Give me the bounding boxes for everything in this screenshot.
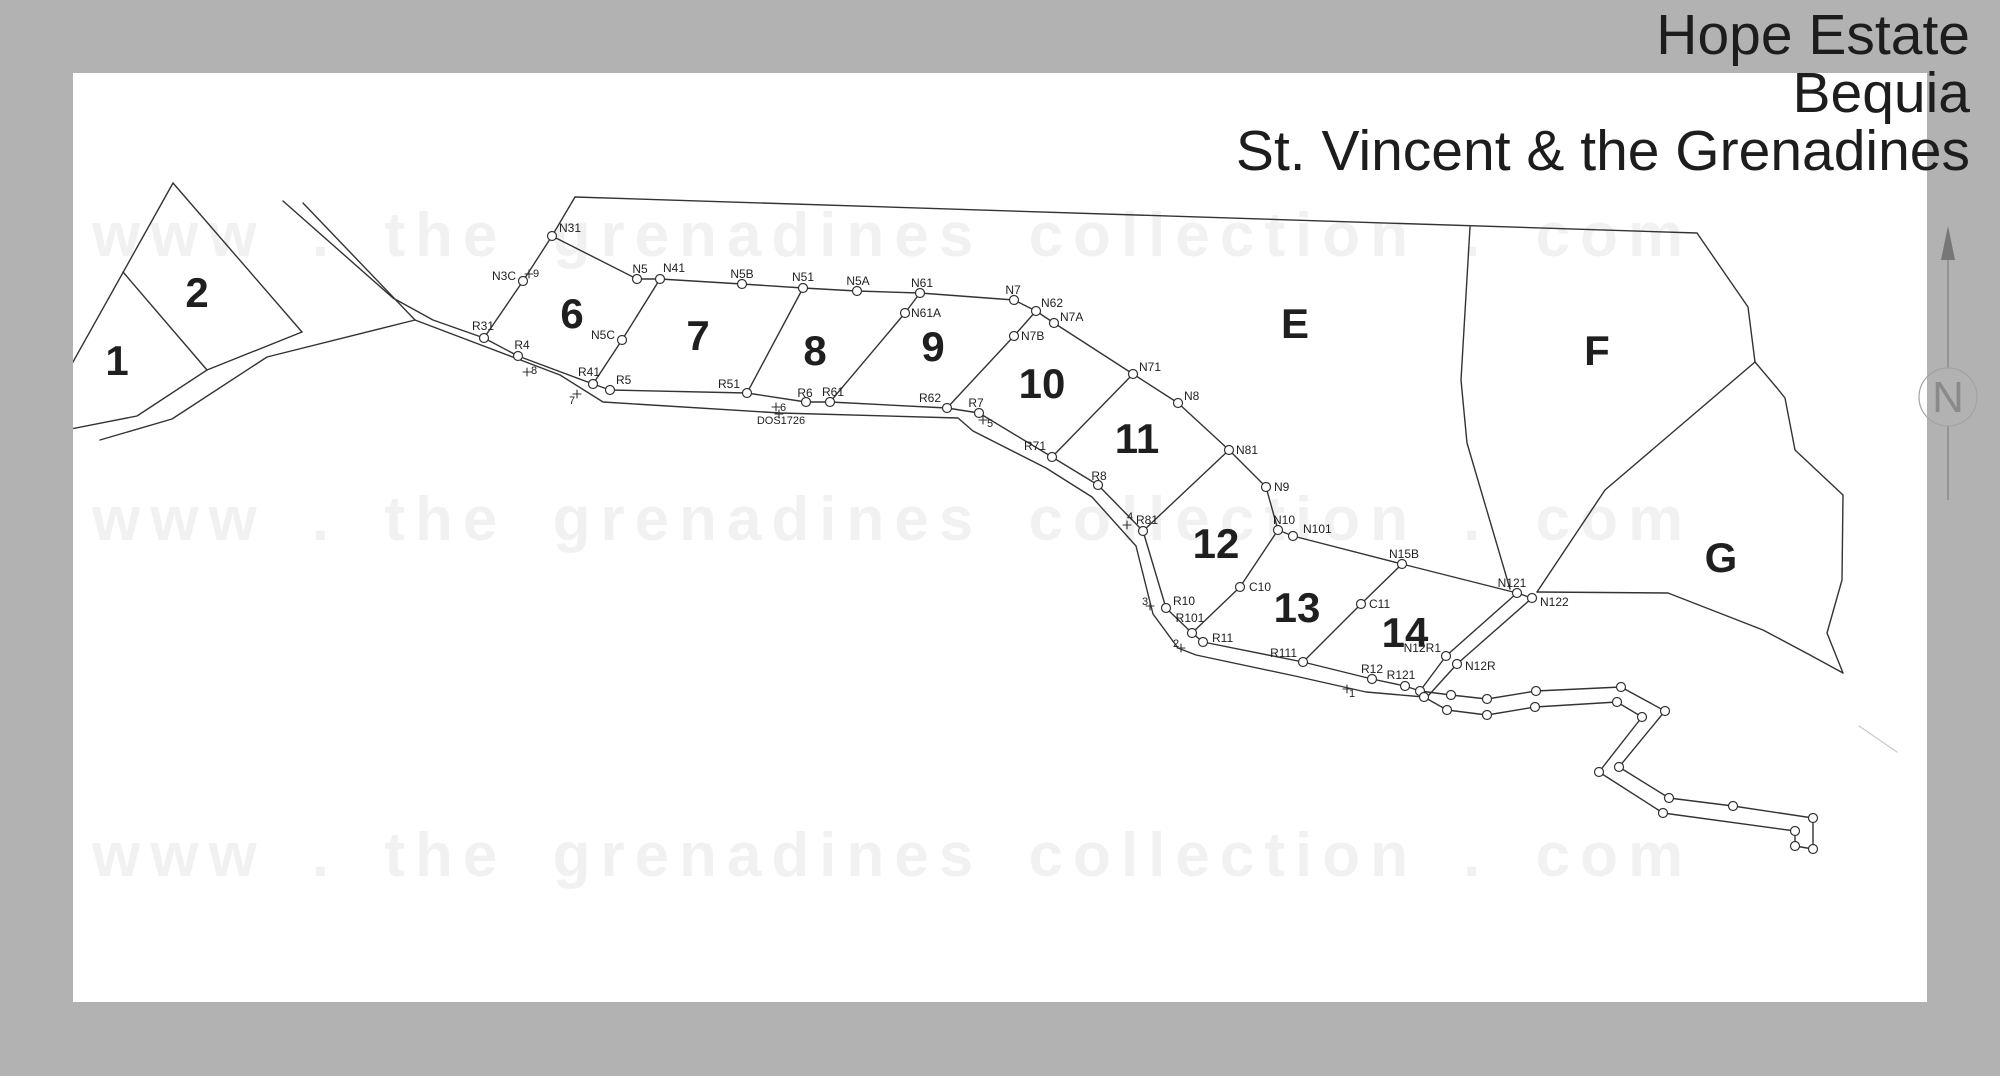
survey-marker	[1615, 763, 1624, 772]
survey-marker-N101	[1289, 532, 1298, 541]
survey-label-R51: R51	[718, 377, 740, 391]
chainage-label: 3	[1142, 596, 1148, 608]
survey-label-N5: N5	[632, 262, 648, 276]
survey-marker-R121	[1401, 682, 1410, 691]
survey-label-R6: R6	[797, 386, 813, 400]
survey-marker-R71	[1048, 453, 1057, 462]
watermark-row: www . the grenadines collection . com	[91, 201, 1693, 270]
watermark-row: www . the grenadines collection . com	[91, 485, 1693, 554]
survey-marker	[1447, 691, 1456, 700]
survey-label-N122: N122	[1540, 595, 1569, 609]
survey-marker	[1595, 768, 1604, 777]
survey-label-R7: R7	[968, 396, 984, 410]
survey-marker-R10	[1162, 604, 1171, 613]
survey-label-R10: R10	[1173, 594, 1195, 608]
survey-marker	[1729, 802, 1738, 811]
watermark-row: www . the grenadines collection . com	[91, 821, 1693, 890]
lot-label-2: 2	[185, 269, 208, 316]
survey-label-N15B: N15B	[1389, 547, 1419, 561]
title-island: Bequia	[1236, 64, 1970, 122]
survey-marker	[1532, 687, 1541, 696]
chainage-label: 4	[1127, 511, 1133, 523]
survey-label-N62: N62	[1041, 296, 1063, 310]
chainage-label: 9	[533, 268, 539, 280]
lot-label-F: F	[1584, 327, 1610, 374]
lot-label-7: 7	[686, 312, 709, 359]
survey-marker-R62	[943, 404, 952, 413]
survey-label-N7B: N7B	[1021, 329, 1044, 343]
survey-marker	[1483, 695, 1492, 704]
survey-label-N51: N51	[792, 270, 814, 284]
survey-label-N9: N9	[1274, 480, 1290, 494]
survey-marker	[1531, 703, 1540, 712]
north-arrow-letter: N	[1932, 373, 1964, 422]
survey-marker-N81	[1225, 446, 1234, 455]
survey-label-C10: C10	[1249, 580, 1271, 594]
survey-marker	[1665, 794, 1674, 803]
survey-marker-R81	[1139, 527, 1148, 536]
survey-marker-N62	[1032, 307, 1041, 316]
survey-label-N8: N8	[1184, 389, 1200, 403]
survey-label-R121: R121	[1387, 668, 1416, 682]
survey-marker-N7A	[1050, 319, 1059, 328]
survey-label-R41: R41	[578, 365, 600, 379]
survey-ref-label: DOS1726	[757, 415, 805, 427]
lot-label-E: E	[1281, 300, 1309, 347]
lot-label-10: 10	[1019, 360, 1066, 407]
survey-marker-R11	[1199, 638, 1208, 647]
survey-label-R4: R4	[514, 338, 530, 352]
survey-marker	[1617, 683, 1626, 692]
survey-label-N81: N81	[1236, 443, 1258, 457]
title-country: St. Vincent & the Grenadines	[1236, 122, 1970, 180]
survey-marker-R101	[1188, 629, 1197, 638]
survey-marker-N9	[1262, 483, 1271, 492]
survey-label-R61: R61	[822, 385, 844, 399]
lot-label-6: 6	[560, 290, 583, 337]
lot-label-14: 14	[1382, 609, 1429, 656]
survey-label-R81: R81	[1136, 513, 1158, 527]
survey-marker-N12R1	[1442, 652, 1451, 661]
lot-label-8: 8	[803, 327, 826, 374]
survey-marker-N61A	[901, 309, 910, 318]
survey-marker	[1638, 713, 1647, 722]
survey-label-R101: R101	[1176, 611, 1205, 625]
chainage-label: 1	[1349, 688, 1355, 700]
survey-marker-N41	[656, 275, 665, 284]
survey-label-N31: N31	[559, 221, 581, 235]
survey-label-N101: N101	[1303, 522, 1332, 536]
survey-label-N71: N71	[1139, 360, 1161, 374]
survey-marker-N5C	[618, 336, 627, 345]
survey-marker-N12R	[1453, 660, 1462, 669]
survey-marker-R31	[480, 334, 489, 343]
survey-marker-R5	[606, 386, 615, 395]
title-estate-name: Hope Estate	[1236, 6, 1970, 64]
survey-label-N10: N10	[1273, 513, 1295, 527]
survey-marker	[1659, 809, 1668, 818]
lot-label-1: 1	[105, 337, 128, 384]
survey-label-R111: R111	[1270, 646, 1297, 660]
survey-marker	[1809, 814, 1818, 823]
chainage-label: 5	[987, 418, 993, 430]
survey-marker-N8	[1174, 399, 1183, 408]
chainage-label: 7	[569, 395, 575, 407]
chainage-label: 6	[780, 402, 786, 414]
survey-marker-N3C	[519, 277, 528, 286]
lot-label-G: G	[1705, 534, 1738, 581]
survey-marker-C11	[1357, 600, 1366, 609]
north-arrow-head-icon	[1941, 226, 1955, 260]
survey-marker-R51	[743, 389, 752, 398]
survey-label-N3C: N3C	[492, 269, 516, 283]
survey-label-N41: N41	[663, 261, 685, 275]
survey-marker-R41	[589, 380, 598, 389]
north-arrow: N	[1919, 226, 1977, 500]
survey-label-N7: N7	[1005, 283, 1021, 297]
title-block: Hope Estate Bequia St. Vincent & the Gre…	[1236, 6, 1970, 180]
survey-label-R8: R8	[1091, 469, 1107, 483]
survey-marker-N122	[1528, 594, 1537, 603]
lot-label-13: 13	[1274, 584, 1321, 631]
survey-marker	[1791, 842, 1800, 851]
page: { "title": { "line1": "Hope Estate", "li…	[0, 0, 2000, 1076]
survey-label-R62: R62	[919, 391, 941, 405]
survey-marker-R4	[514, 352, 523, 361]
survey-label-R12: R12	[1361, 662, 1383, 676]
survey-marker-R111	[1299, 658, 1308, 667]
chainage-label: 2	[1173, 638, 1179, 650]
survey-marker-N31	[548, 232, 557, 241]
survey-marker	[1661, 707, 1670, 716]
survey-label-R71: R71	[1024, 439, 1046, 453]
lot-label-9: 9	[921, 323, 944, 370]
survey-marker	[1613, 698, 1622, 707]
survey-marker-C10	[1236, 583, 1245, 592]
survey-label-N121: N121	[1498, 576, 1527, 590]
survey-label-R5: R5	[616, 373, 632, 387]
survey-marker-N51	[799, 284, 808, 293]
survey-label-N5A: N5A	[846, 274, 869, 288]
survey-marker-N71	[1129, 370, 1138, 379]
chainage-label: 8	[531, 365, 537, 377]
survey-marker-N7B	[1010, 332, 1019, 341]
survey-marker	[1809, 845, 1818, 854]
lot-label-12: 12	[1193, 520, 1240, 567]
survey-label-N5B: N5B	[730, 267, 753, 281]
survey-label-R11: R11	[1212, 631, 1233, 645]
survey-marker	[1443, 706, 1452, 715]
survey-marker	[1791, 827, 1800, 836]
survey-marker	[1420, 693, 1429, 702]
survey-label-N61: N61	[911, 276, 933, 290]
survey-label-N61A: N61A	[911, 306, 941, 320]
lot-label-11: 11	[1115, 415, 1159, 462]
survey-label-N5C: N5C	[591, 328, 615, 342]
survey-label-R31: R31	[472, 319, 494, 333]
survey-label-N7A: N7A	[1060, 310, 1083, 324]
survey-label-N12R: N12R	[1465, 659, 1496, 673]
survey-marker	[1483, 711, 1492, 720]
